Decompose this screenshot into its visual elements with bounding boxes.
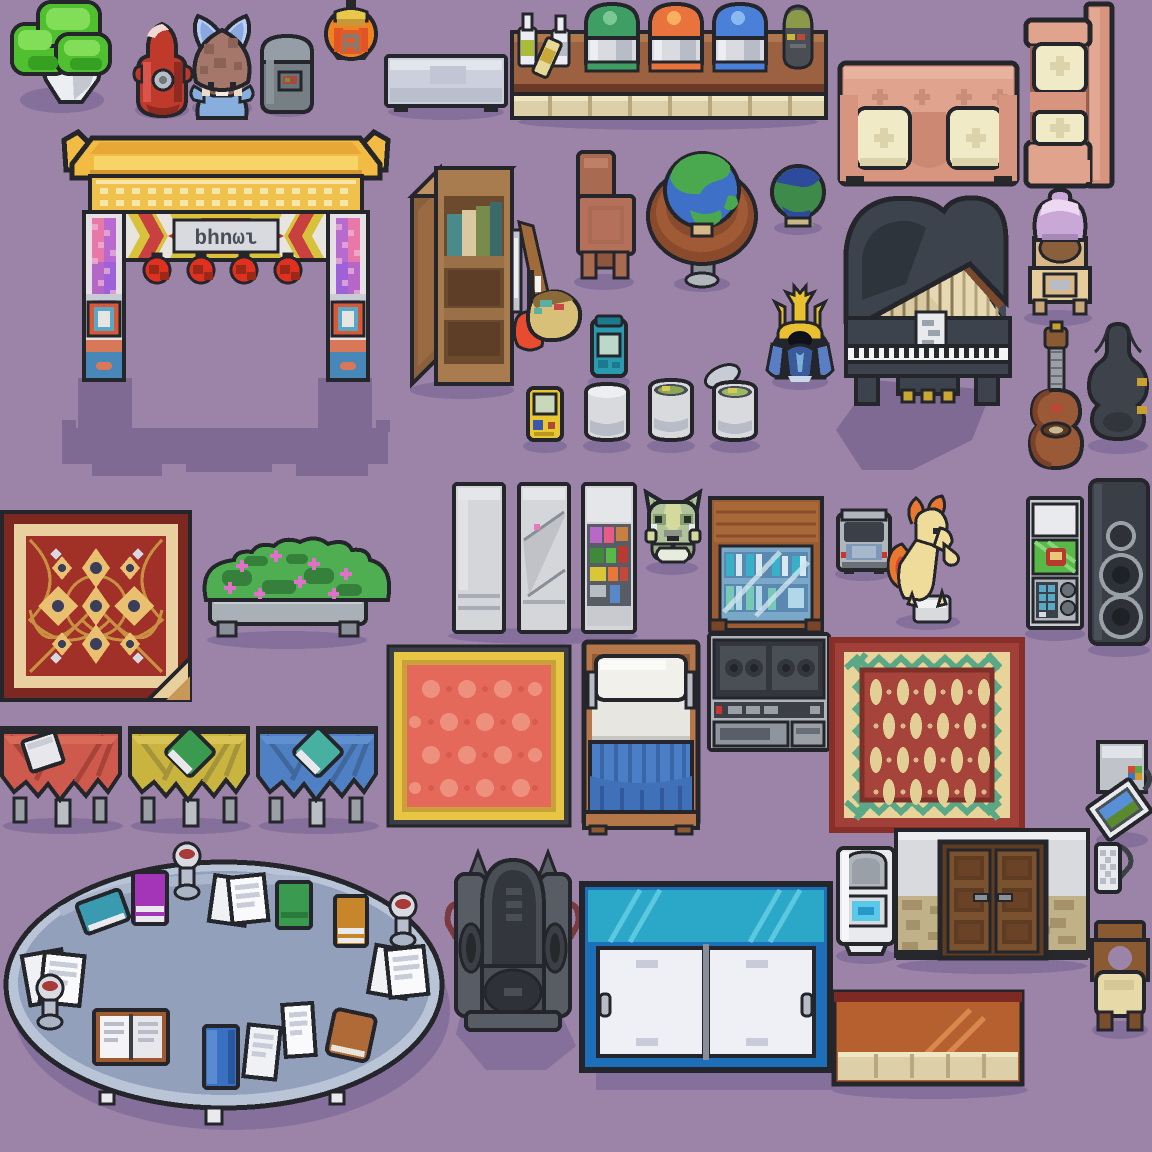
svg-text:bhnωι: bhnωι <box>194 228 257 251</box>
